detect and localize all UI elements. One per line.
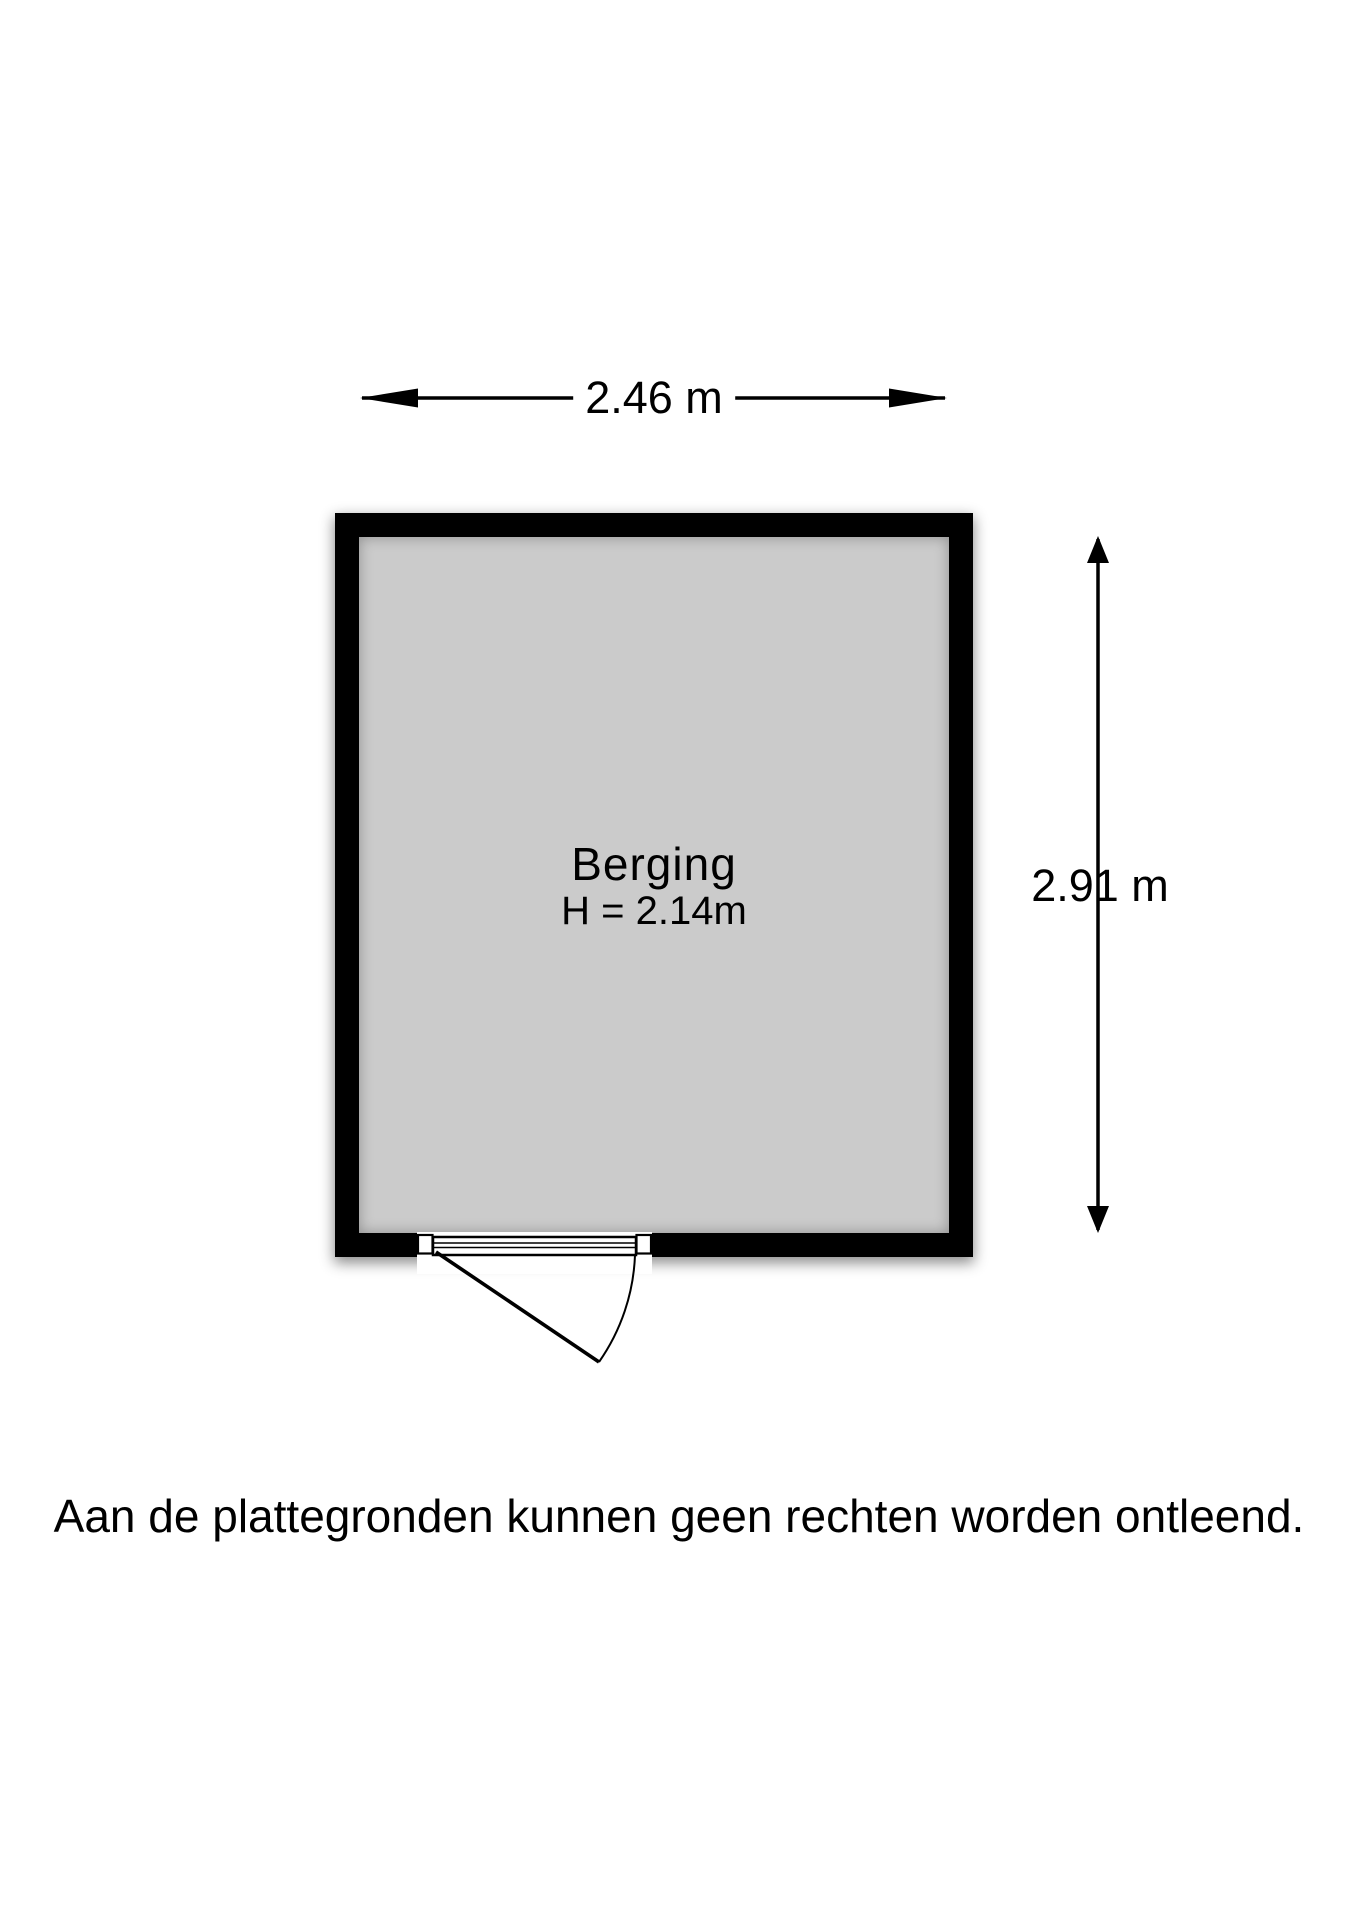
arrowhead-down-icon (1087, 1206, 1109, 1233)
room-name: Berging (359, 840, 949, 888)
door-swing-arc (599, 1255, 635, 1362)
disclaimer-text: Aan de plattegronden kunnen geen rechten… (0, 1492, 1358, 1540)
door-leaf-line (436, 1252, 599, 1362)
room-ceiling-height: H = 2.14m (359, 888, 949, 934)
arrowhead-right-icon (889, 389, 947, 408)
floorplan-canvas: Berging H = 2.14m 2.46 m 2.91 m Aan de p… (0, 0, 1358, 1920)
arrowhead-up-icon (1087, 536, 1109, 563)
width-dimension-label: 2.46 m (573, 373, 735, 423)
arrowhead-left-icon (360, 389, 418, 408)
height-dimension-label: 2.91 m (1031, 861, 1169, 911)
room-label: Berging H = 2.14m (359, 840, 949, 934)
